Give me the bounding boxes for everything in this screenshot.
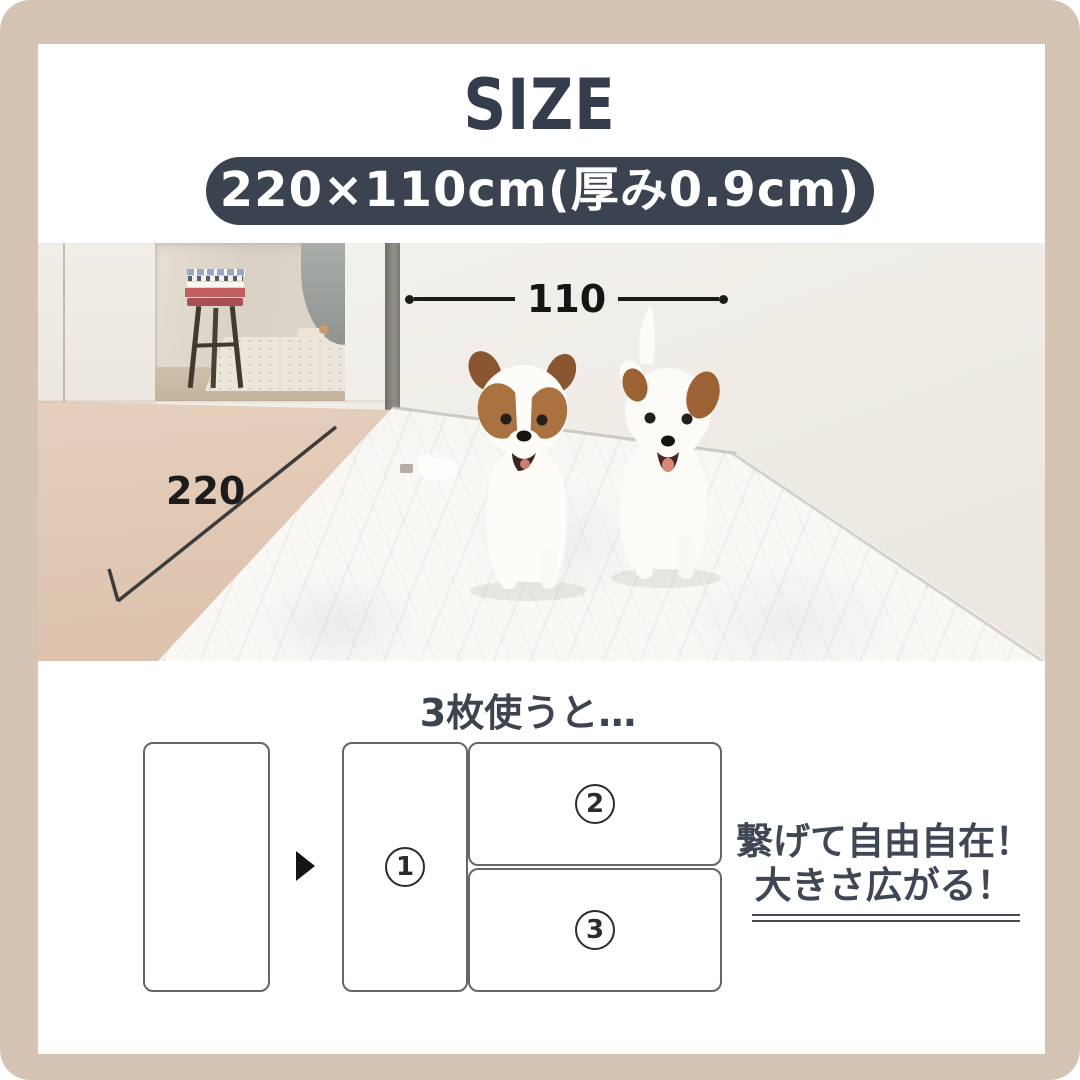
- usage-caption-line1: 繋げて自由自在！: [726, 820, 1042, 864]
- mat-diagram-3: 3: [468, 868, 722, 992]
- usage-caption-line2: 大きさ広がる！: [726, 864, 1042, 908]
- dog-illustration-left: [462, 345, 586, 601]
- single-mat-diagram: [143, 742, 270, 992]
- mat-diagram-1: 1: [342, 742, 468, 992]
- circled-number-3: 3: [575, 910, 615, 950]
- length-dimension-label: 220: [166, 469, 245, 513]
- triangle-arrow-icon: [296, 851, 315, 881]
- product-photo: 110 220: [38, 243, 1045, 661]
- dimension-endpoint-dot: [719, 295, 728, 304]
- page-title-text: SIZE: [464, 64, 616, 146]
- toy-on-mat: [400, 454, 458, 481]
- length-dimension-arrow: [109, 427, 336, 601]
- product-size-infographic: SIZE 220×110cm(厚み0.9cm): [0, 0, 1080, 1080]
- mat-diagram-2: 2: [468, 742, 722, 866]
- circled-number-1: 1: [385, 847, 425, 887]
- dog-illustration-right: [611, 305, 725, 588]
- dimension-endpoint-dot: [405, 295, 414, 304]
- caption-double-underline: [752, 914, 1020, 922]
- page-title: SIZE: [0, 64, 1080, 146]
- usage-caption: 繋げて自由自在！ 大きさ広がる！: [726, 820, 1042, 908]
- circled-number-2: 2: [575, 784, 615, 824]
- usage-heading: 3枚使うと…: [0, 682, 1056, 737]
- size-dimension-badge: 220×110cm(厚み0.9cm): [206, 157, 874, 225]
- width-dimension-label: 110: [527, 280, 606, 318]
- width-dimension: 110: [405, 280, 728, 318]
